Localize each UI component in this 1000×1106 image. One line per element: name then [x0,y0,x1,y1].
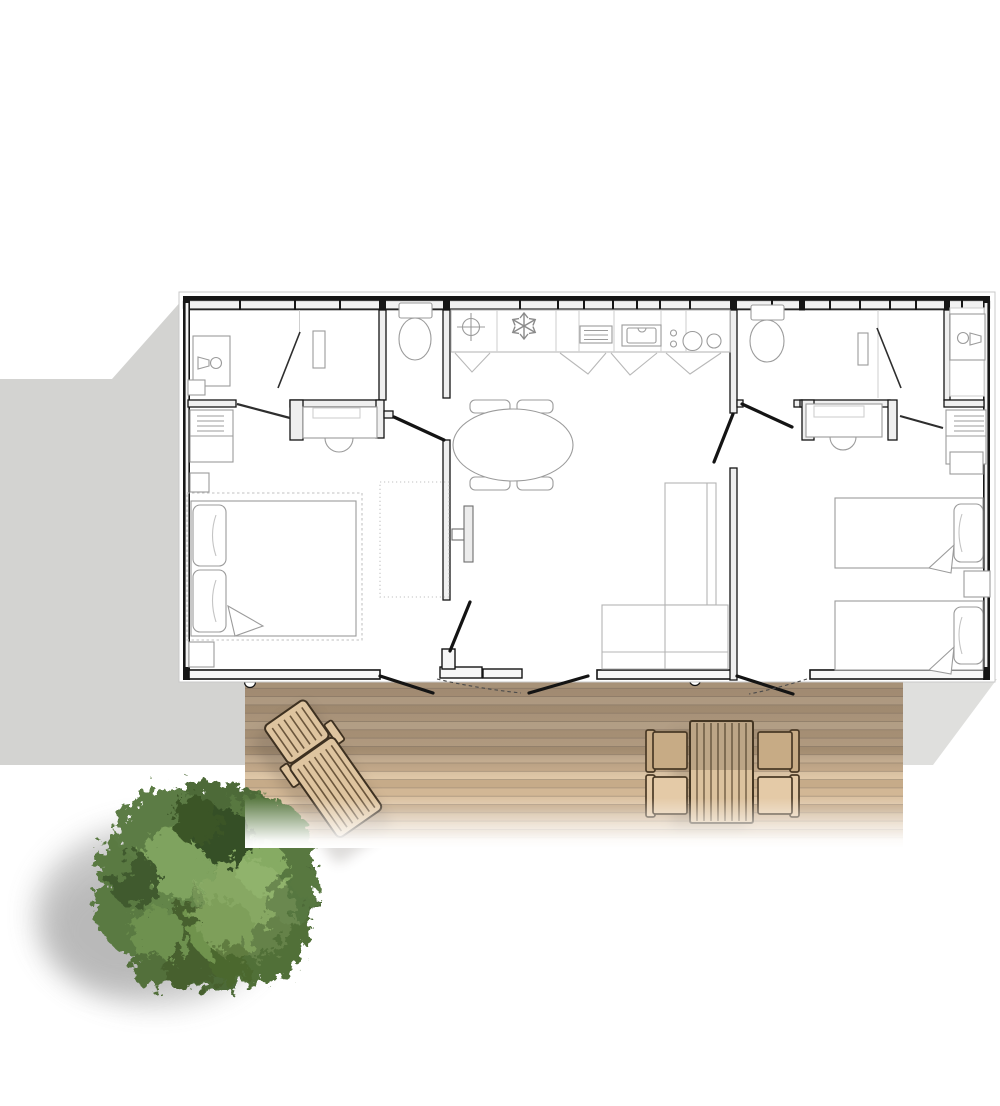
twin-bed-2 [835,601,983,674]
outdoor-chair-top-right [758,730,799,772]
toilet-right [750,305,784,362]
ground-shadow-right [903,679,997,765]
nightstand-right-mid [964,571,990,597]
house [179,292,995,694]
kitchen-drawers [580,326,612,343]
oval-dining-table [453,409,573,481]
closet-right [858,333,868,365]
outdoor-table-shade-overlay [690,721,753,770]
washbasin-right [950,314,985,360]
nightstand-right-top [950,452,983,474]
double-bed [187,493,362,640]
outdoor-chair-top-left [646,730,687,772]
nightstand-left-bottom [189,642,214,667]
twin-bed-1 [835,498,983,573]
closet-left [313,331,325,368]
dresser-left [190,410,233,462]
toilet-left [399,303,432,360]
kitchen-sink [622,325,661,346]
nightstand-left-top [190,473,209,492]
floor-plan-scene [0,0,1000,1106]
washbasin-left [188,336,230,395]
deck-bottom-fade [245,798,903,848]
floor-plan-canvas [0,0,1000,1106]
